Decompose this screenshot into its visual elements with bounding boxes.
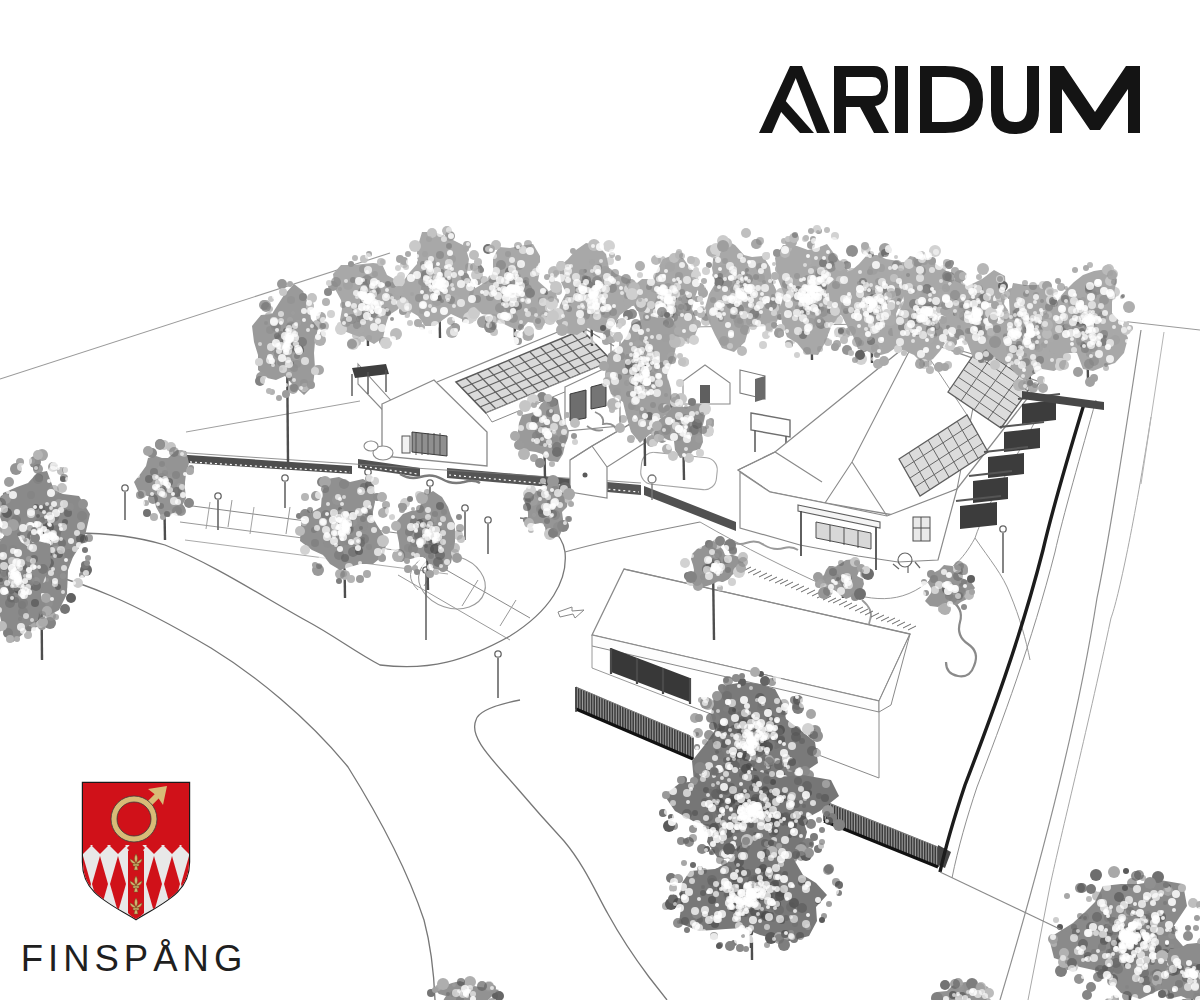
svg-text:FINSPÅNG: FINSPÅNG: [21, 938, 248, 979]
